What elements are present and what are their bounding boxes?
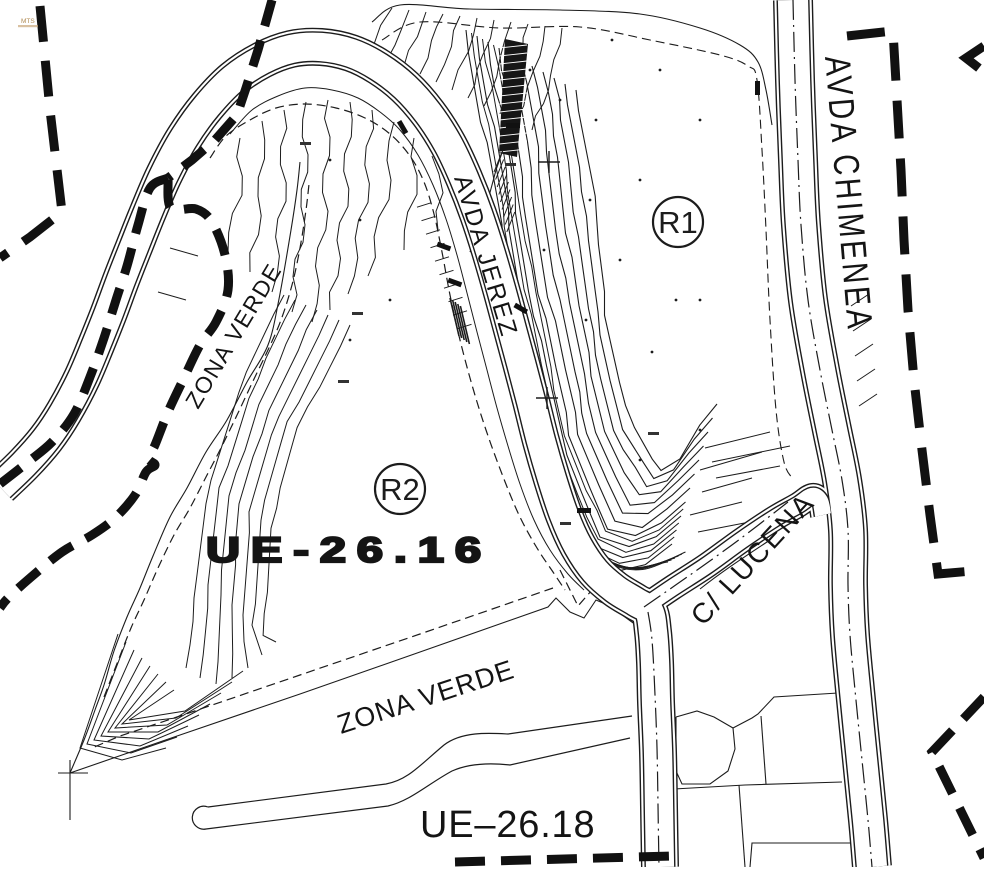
svg-text:R1: R1	[658, 205, 698, 240]
svg-text:UE-26.16: UE-26.16	[206, 530, 492, 570]
svg-text:R2: R2	[380, 472, 420, 507]
svg-text:MTS: MTS	[21, 18, 35, 25]
svg-text:UE–26.18: UE–26.18	[420, 804, 595, 846]
